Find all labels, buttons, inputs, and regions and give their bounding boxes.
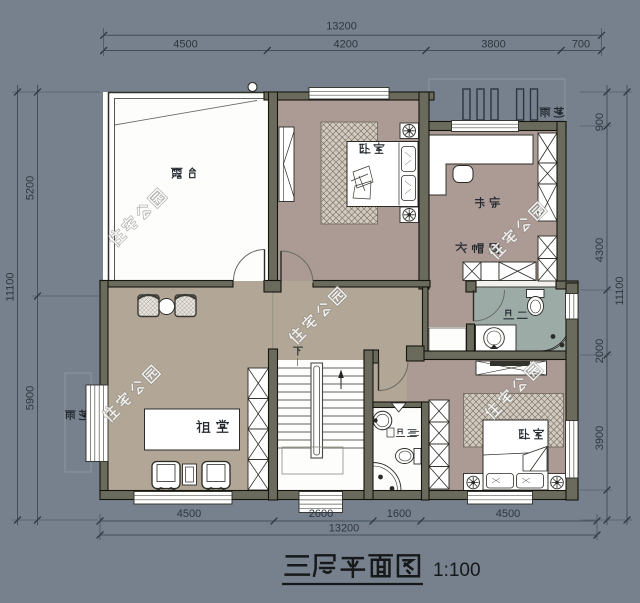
svg-text:1:100: 1:100 <box>433 560 481 581</box>
svg-text:4500: 4500 <box>173 39 197 51</box>
svg-text:11100: 11100 <box>5 273 17 302</box>
svg-text:4300: 4300 <box>594 238 606 262</box>
svg-text:1600: 1600 <box>387 508 411 520</box>
svg-text:11100: 11100 <box>614 277 626 306</box>
svg-text:2600: 2600 <box>309 508 333 520</box>
svg-text:5900: 5900 <box>25 386 37 410</box>
svg-text:5200: 5200 <box>25 176 37 200</box>
svg-text:4500: 4500 <box>177 508 201 520</box>
svg-text:700: 700 <box>572 39 590 51</box>
svg-text:3800: 3800 <box>481 39 505 51</box>
svg-text:4500: 4500 <box>496 508 520 520</box>
svg-text:900: 900 <box>594 113 606 131</box>
svg-text:13200: 13200 <box>329 523 360 535</box>
svg-text:4200: 4200 <box>334 39 358 51</box>
svg-text:13200: 13200 <box>326 21 357 33</box>
svg-text:2000: 2000 <box>594 339 606 363</box>
svg-text:3900: 3900 <box>594 426 606 450</box>
